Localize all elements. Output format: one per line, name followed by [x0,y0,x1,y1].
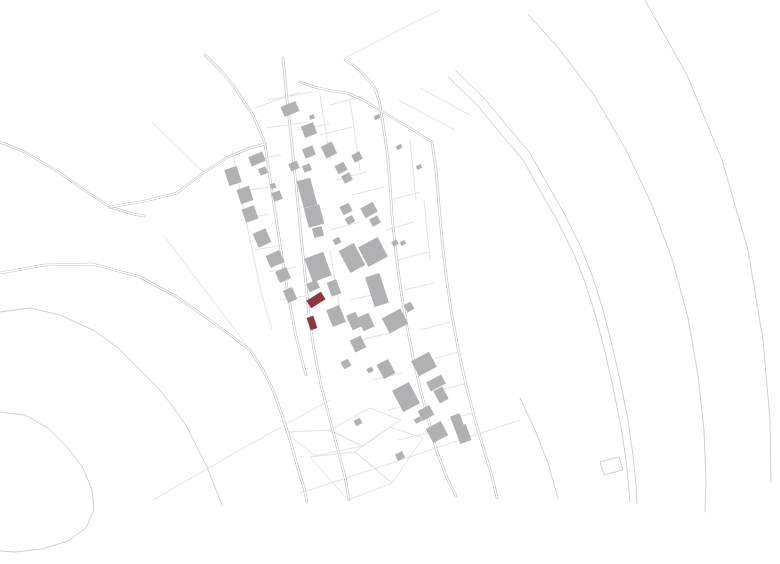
map-viewport [0,0,780,564]
map-canvas[interactable] [0,0,780,564]
map-background [0,0,780,564]
